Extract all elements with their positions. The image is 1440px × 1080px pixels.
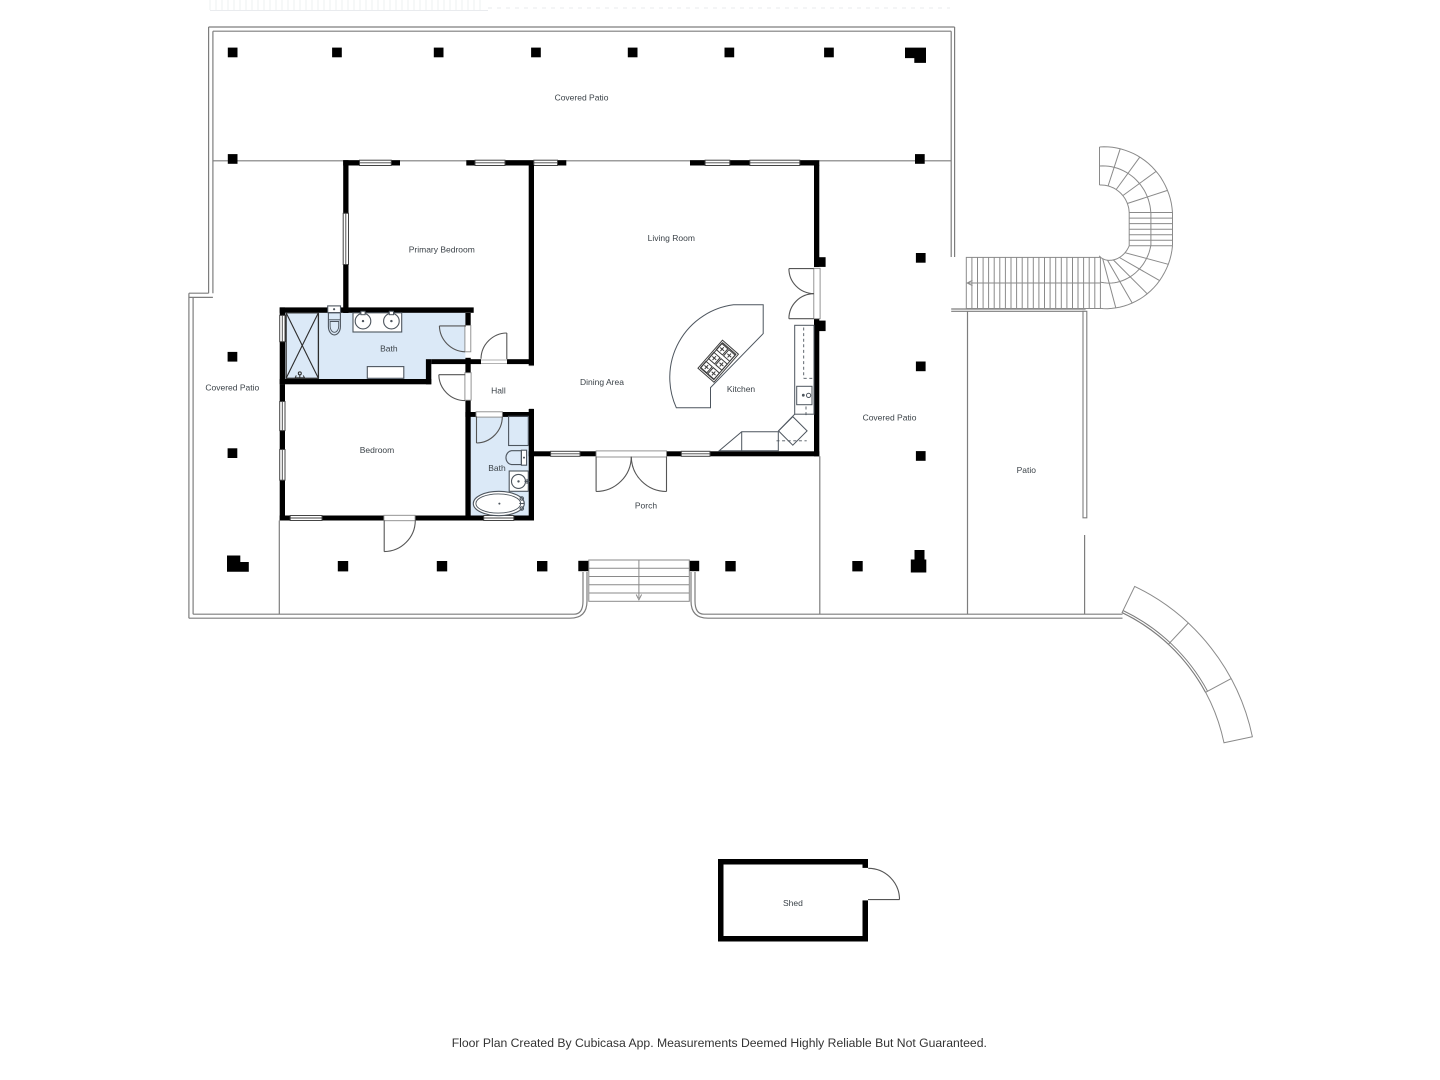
svg-text:Porch: Porch [635,501,657,511]
svg-text:Patio: Patio [1017,465,1037,475]
svg-text:Covered Patio: Covered Patio [555,93,609,103]
svg-text:Shed: Shed [783,898,803,908]
svg-text:Hall: Hall [491,386,506,396]
svg-text:Floor Plan Created By Cubicasa: Floor Plan Created By Cubicasa App. Meas… [452,1036,987,1050]
svg-text:Bath: Bath [488,463,506,473]
svg-text:Covered Patio: Covered Patio [205,382,259,392]
svg-text:Kitchen: Kitchen [727,384,756,394]
svg-text:Bedroom: Bedroom [360,445,395,455]
svg-text:Primary Bedroom: Primary Bedroom [409,244,475,254]
svg-text:Covered Patio: Covered Patio [863,413,917,423]
svg-text:Bath: Bath [380,343,398,353]
svg-text:Living Room: Living Room [648,233,695,243]
svg-text:Dining Area: Dining Area [580,377,624,387]
